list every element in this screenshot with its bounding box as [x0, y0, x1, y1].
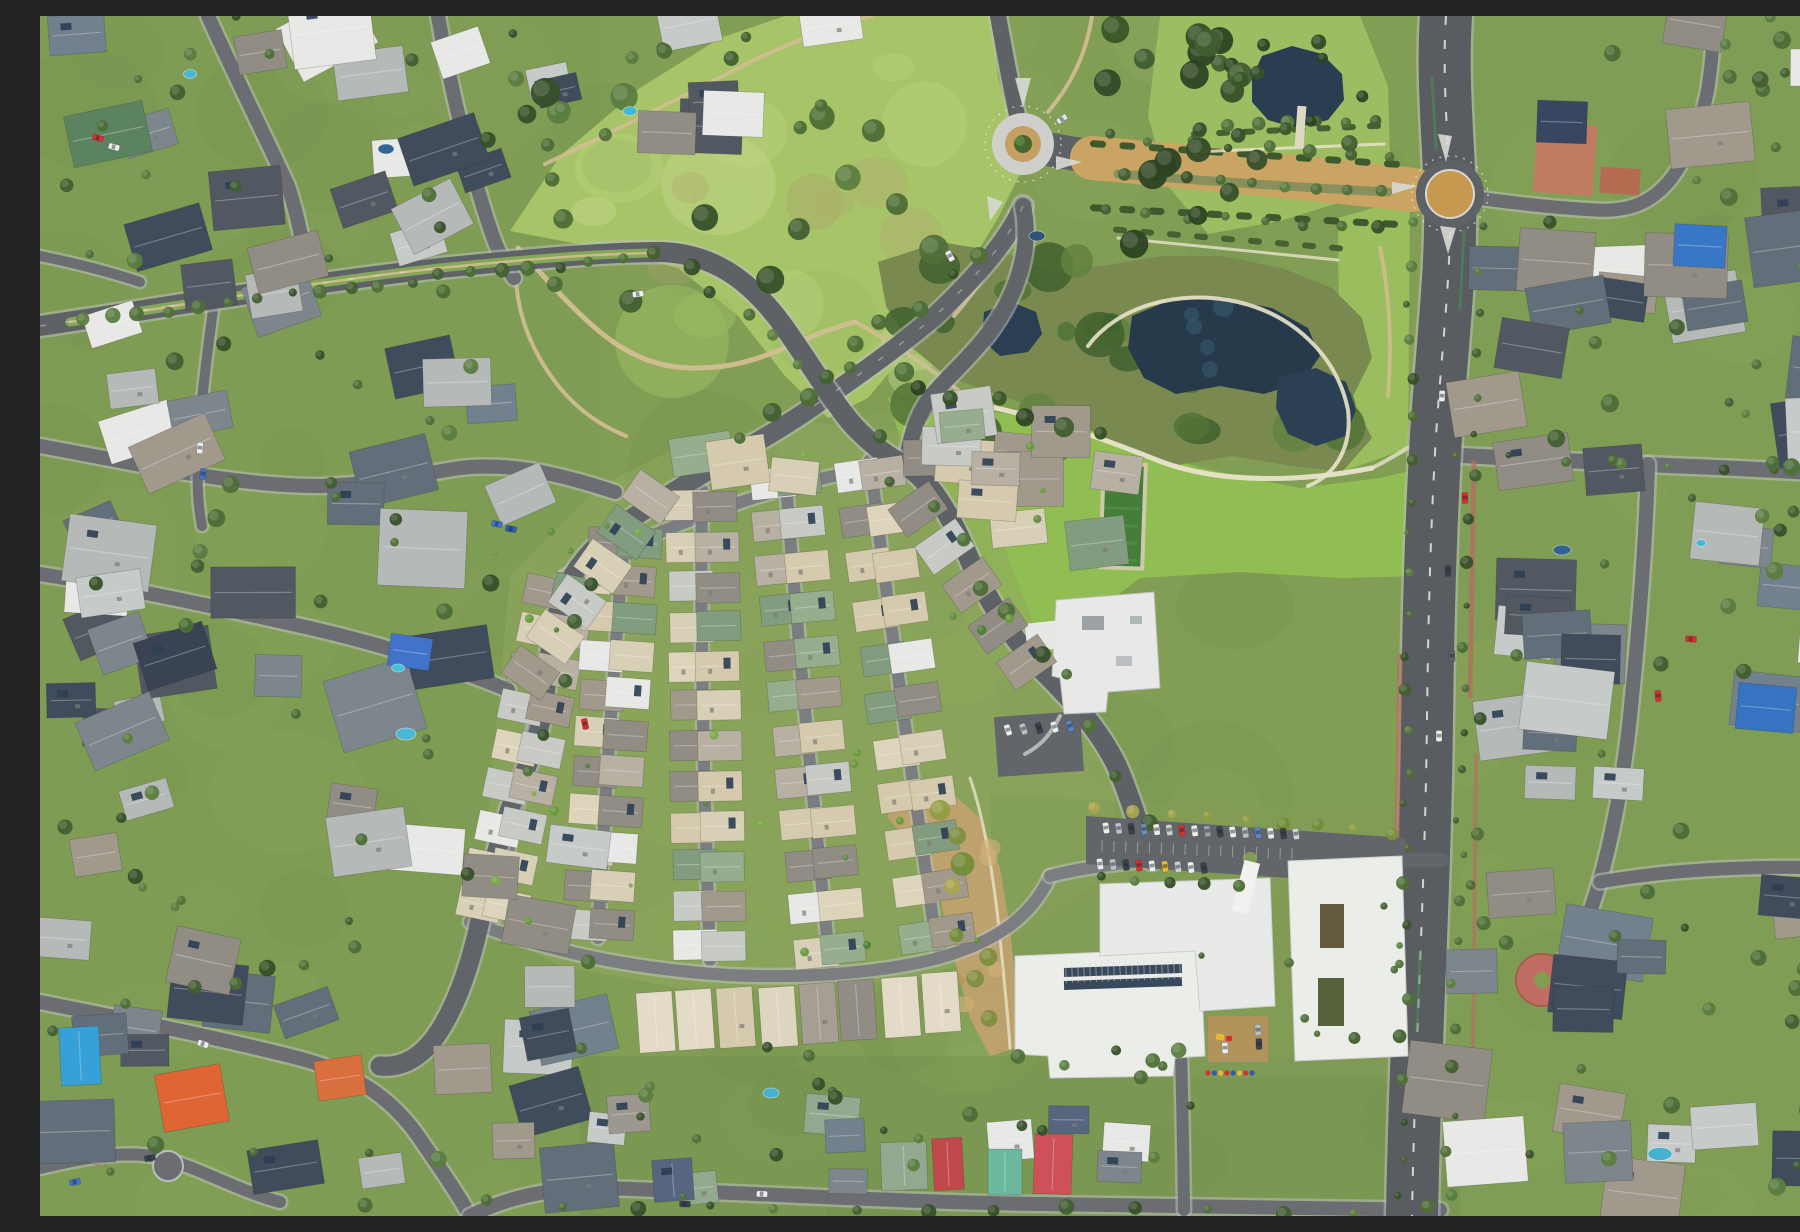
aerial-photo [40, 16, 1800, 1216]
haze [40, 16, 1800, 1216]
aerial-suburb-scene [40, 16, 1800, 1216]
